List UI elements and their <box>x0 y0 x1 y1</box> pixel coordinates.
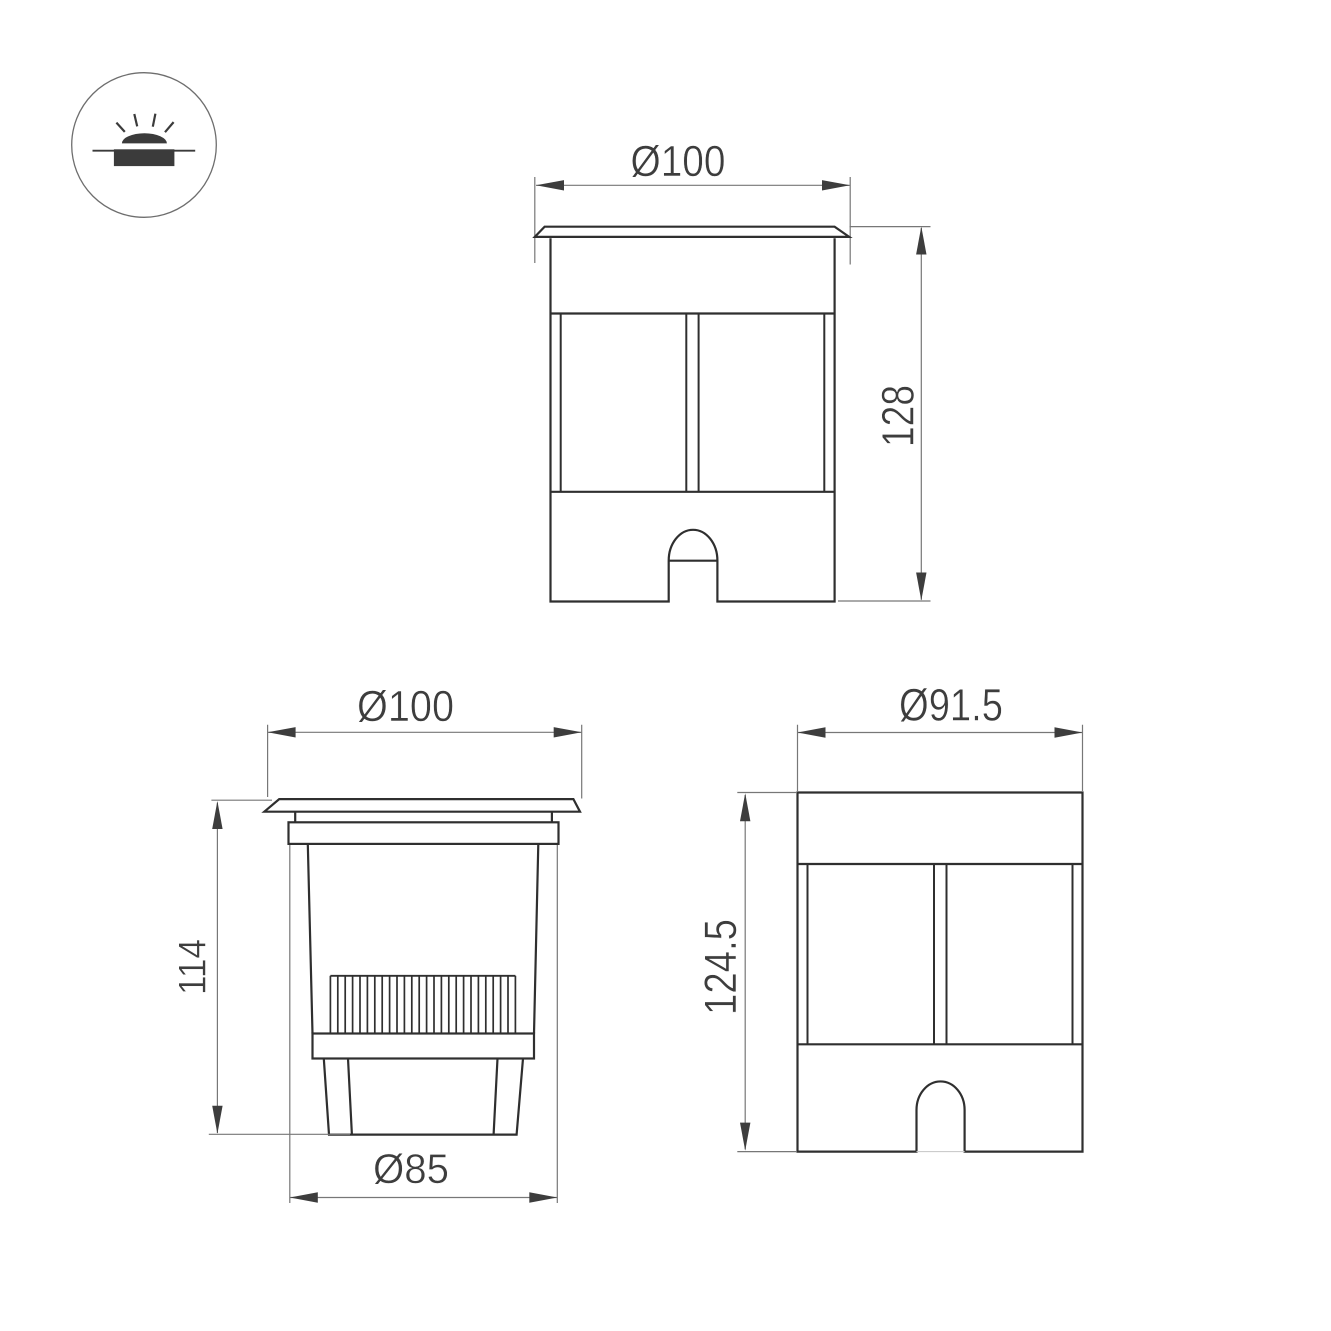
svg-text:Ø85: Ø85 <box>373 1145 449 1192</box>
svg-text:124.5: 124.5 <box>695 919 746 1015</box>
svg-text:Ø100: Ø100 <box>631 137 726 186</box>
svg-text:128: 128 <box>873 385 924 447</box>
svg-text:Ø91.5: Ø91.5 <box>899 680 1003 731</box>
svg-text:Ø100: Ø100 <box>357 682 454 731</box>
svg-text:114: 114 <box>172 939 215 995</box>
